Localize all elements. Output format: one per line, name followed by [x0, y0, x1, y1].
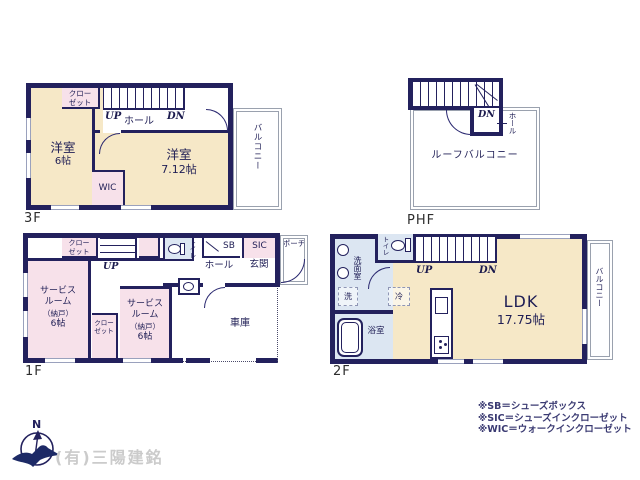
bedroom2-name: 洋室 [138, 147, 220, 163]
bedroom1-name: 洋室 [34, 140, 92, 156]
window [26, 118, 31, 140]
company-watermark: (有)三陽建銘 [55, 444, 164, 468]
bedroom1-size: 6帖 [34, 156, 92, 169]
window [23, 311, 28, 337]
window [51, 205, 79, 210]
hall-label-3f: ホール [116, 116, 162, 129]
window [582, 309, 587, 344]
floor-1f-plan: クロー ゼット UP トイレ SB SIC ポーチ ホール 玄関 [23, 233, 309, 365]
toilet-1f: トイレ [163, 238, 194, 261]
wall [225, 283, 280, 287]
stairs-2f [413, 237, 497, 263]
stairs-down-label: DN [167, 111, 185, 122]
storage-1f [139, 238, 160, 258]
floor-phf-plan: ルーフバルコニー DN ホール [405, 76, 565, 216]
toilet-2f: トイレ [375, 234, 416, 263]
bath-label: 浴室 [360, 326, 392, 337]
porch-label: ポーチ [281, 239, 307, 248]
closet-3f: クロー ゼット [62, 88, 100, 109]
kitchen-island [430, 288, 453, 359]
stairs-down-label-2f: DN [479, 265, 497, 276]
service-room-2-label: サービス ルーム （納戸） 6帖 [118, 299, 172, 343]
service1-line: 6帖 [29, 319, 87, 330]
washbasin-bowl [183, 282, 194, 291]
stairs-up-label-1f: UP [103, 261, 118, 272]
service2-line: サービス [118, 299, 172, 310]
entrance-label-1f: 玄関 [239, 259, 279, 271]
closet-label: ゼット [92, 327, 116, 335]
landing-phf: DN [470, 108, 503, 136]
shoebox-label: SB [218, 241, 240, 252]
stove-icon [434, 336, 449, 354]
ldk-name: LDK [476, 292, 566, 312]
leader-line [497, 123, 507, 124]
wic-3f: WIC [92, 170, 125, 205]
legend-line-wic: ※WIC＝ウォークインクローゼット [478, 424, 632, 436]
window [473, 359, 503, 364]
legend: ※SB＝シューズボックス ※SIC＝シューズインクローゼット ※WIC＝ウォーク… [478, 401, 632, 436]
closet-label: クロー [92, 319, 116, 327]
floor-label-2f: 2F [333, 364, 351, 379]
toilet-label-1f: トイレ [187, 239, 197, 259]
closet2-1f: クロー ゼット [92, 313, 118, 358]
wic-label: WIC [92, 183, 123, 194]
shelf-line [206, 241, 219, 252]
stairs-1f [100, 238, 137, 260]
window [26, 153, 31, 178]
toilet-tank-icon [405, 238, 411, 252]
door-arc-garage [204, 287, 225, 308]
floor-label-phf: PHF [407, 213, 435, 228]
service1-line: サービス [29, 286, 87, 297]
roof-balcony-label: ルーフバルコニー [415, 150, 535, 163]
toilet-tank-icon [180, 243, 185, 255]
fridge-label: 冷 [395, 291, 403, 302]
sic-label: SIC [244, 241, 275, 252]
sic-1f: SIC [242, 238, 275, 258]
burner-dots [439, 340, 442, 343]
stairs-up-label-2f: UP [416, 265, 432, 276]
legend-line-sic: ※SIC＝シューズインクローゼット [478, 413, 632, 425]
wall [256, 358, 278, 363]
wall [335, 310, 393, 314]
compass-north-label: N [32, 418, 41, 431]
closet-label: ゼット [62, 98, 98, 107]
closet-1f: クロー ゼット [62, 238, 98, 258]
laundry-box: 洗 [338, 287, 358, 306]
hall-label-1f: ホール [197, 260, 241, 272]
bathtub-inner [341, 322, 359, 353]
hall-label-phf: ホール [507, 112, 518, 135]
laundry-label: 洗 [344, 291, 352, 302]
floor-label-1f: 1F [25, 364, 43, 379]
garage-side-boundary [277, 286, 278, 363]
service1-line: （納戸） [29, 308, 87, 319]
bedroom2-size: 7.12帖 [138, 163, 220, 177]
bathtub-icon [337, 318, 363, 357]
window [520, 234, 570, 239]
washbasin-1f [178, 278, 200, 295]
fridge-box: 冷 [388, 287, 410, 306]
window [45, 358, 75, 363]
kitchen-sink-icon [435, 297, 448, 314]
service2-line: 6帖 [118, 332, 172, 343]
sink-icon [337, 244, 349, 256]
closet-label: ゼット [62, 248, 96, 257]
window [438, 359, 464, 364]
service2-line: ルーム [118, 310, 172, 321]
closet-label: クロー [62, 89, 98, 98]
floor-3f-plan: クロー ゼット UP DN ホール WIC 洋室 6帖 洋室 7.12帖 バルコ… [26, 83, 282, 210]
ldk-label: LDK 17.75帖 [476, 292, 566, 328]
floorplan-canvas: クロー ゼット UP DN ホール WIC 洋室 6帖 洋室 7.12帖 バルコ… [0, 0, 640, 480]
stairs-3f [103, 88, 185, 110]
stairs-down-label-phf: DN [478, 109, 495, 120]
sink-icon [337, 267, 349, 279]
bedroom2-label-3f: 洋室 7.12帖 [138, 147, 220, 176]
floor-label-3f: 3F [24, 211, 42, 226]
service2-line: （納戸） [118, 321, 172, 332]
garage-label: 車庫 [215, 318, 265, 331]
balcony-label-2f: バルコニー [594, 267, 605, 307]
toilet-icon [391, 240, 405, 251]
toilet-label-2f: トイレ [380, 236, 390, 256]
wall [186, 358, 210, 363]
wall [92, 130, 100, 133]
shoebox-1f: SB [202, 238, 240, 258]
washroom-label: 洗面室 [352, 256, 363, 280]
legend-line-sb: ※SB＝シューズボックス [478, 401, 632, 413]
floor-2f-plan: 洗面室 洗 浴室 トイレ UP DN 冷 [330, 234, 615, 366]
window [23, 273, 28, 297]
window [123, 358, 151, 363]
ldk-size: 17.75帖 [476, 312, 566, 328]
wall [88, 261, 91, 358]
service-room-1-label: サービス ルーム （納戸） 6帖 [29, 286, 87, 330]
window [121, 205, 151, 210]
closet-label: クロー [62, 239, 96, 248]
service1-line: ルーム [29, 297, 87, 308]
bedroom1-label-3f: 洋室 6帖 [34, 140, 92, 168]
balcony-label-3f: バルコニー [251, 123, 263, 171]
